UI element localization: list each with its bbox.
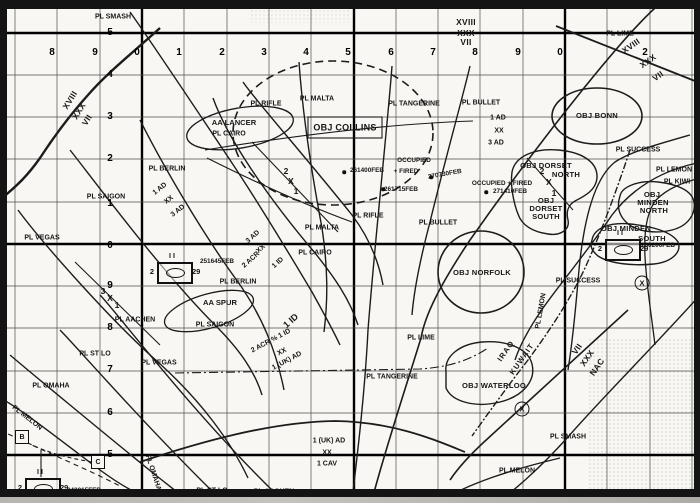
objective-label: OBJ NORFOLK (453, 269, 511, 277)
annotation-label: OCCUPIED (397, 158, 431, 164)
phase-line-label: PL CAIRO (212, 131, 245, 138)
phase-line-label: PL MELON (11, 404, 44, 432)
command-post-marker: B (15, 430, 29, 444)
echelon-label: II (37, 469, 45, 476)
unit-label: XX (322, 450, 331, 457)
phase-line-label: PL LEMON (534, 293, 547, 330)
phase-line-label: PL TANGERINE (366, 374, 417, 381)
armor-oval-icon (166, 268, 185, 278)
objective-label: OBJ WATERLOO (462, 382, 526, 390)
phase-line-label: PL MELON (499, 468, 535, 475)
grid-label: 2 (642, 48, 648, 58)
objective-label: NORTH (640, 207, 668, 215)
event-dot (429, 175, 433, 179)
unit-label: 1 AD (490, 115, 506, 122)
phase-line-label: PL CAIRO (298, 250, 331, 257)
map-label-overlay: PL SMASHPL LIMEPL RIFLEPL MALTAPL TANGER… (0, 0, 700, 503)
annotation-label: 251645FEB (200, 259, 234, 265)
map-border-bottom (0, 489, 700, 497)
armor-oval-icon (614, 245, 633, 255)
grid-label: 7 (430, 48, 436, 58)
grid-label: 2 (107, 154, 113, 164)
phase-line-label: PL TANGERINE (388, 101, 439, 108)
grid-label: 0 (107, 241, 113, 251)
corps-boundary-label: VII (570, 342, 583, 356)
boundary-mark: 1 (552, 189, 557, 198)
phase-line-label: PL ST LO (79, 351, 110, 358)
unit-label: 1 ID (271, 256, 285, 270)
phase-line-label: PL LIME (407, 335, 434, 342)
phase-line-label: PL KIWI (664, 179, 690, 186)
unit-label: 3 AD (488, 140, 504, 147)
phase-line-label: PL MALTA (300, 96, 334, 103)
unit-label: 1 CAV (317, 461, 337, 468)
grid-label: 8 (107, 323, 113, 333)
unit-label: 1 ID (282, 312, 300, 330)
grid-label: 1 (107, 199, 113, 209)
boundary-mark: 2 (284, 167, 289, 176)
unit-number-right: 29 (192, 267, 200, 276)
annotation-label: 261400FEB (350, 168, 384, 174)
grid-label: 6 (388, 48, 394, 58)
unit-label: 1 (UK) AD (313, 438, 345, 445)
checkpoint-icon: X (515, 402, 530, 417)
annotation-label: + FIRED (394, 169, 419, 175)
unit-label: XX (494, 128, 503, 135)
annotation-label: 261715FEB (384, 187, 418, 193)
grid-label: 5 (345, 48, 351, 58)
checkpoint-icon: X (635, 276, 650, 291)
boundary-mark: 2 (540, 167, 545, 176)
unit-label: 3 AD (170, 203, 187, 218)
grid-label: 3 (261, 48, 267, 58)
phase-line-label: PL RIFLE (251, 101, 282, 108)
boundary-mark: X (288, 177, 294, 186)
grid-label: 0 (134, 48, 140, 58)
objective-label: OBJ MINDEN (601, 225, 651, 233)
map-border-right (694, 0, 700, 503)
phase-line-label: PL SUCCESS (556, 278, 601, 285)
unit-label: XX (163, 194, 175, 205)
objective-label: NORTH (552, 171, 580, 179)
annotation-label: 270730FEB (428, 169, 463, 181)
grid-label: 1 (176, 48, 182, 58)
phase-line-label: PL MALTA (305, 225, 339, 232)
corps-boundary-label: VII (651, 69, 665, 82)
boundary-mark: 1 (294, 187, 299, 196)
phase-line-label: PL BERLIN (149, 166, 186, 173)
grid-label: 2 (219, 48, 225, 58)
grid-label: 4 (107, 70, 113, 80)
grid-label: 5 (107, 28, 113, 38)
annotation-label: 271410FEB (493, 189, 527, 195)
objective-label: OBJ DORSET (520, 162, 572, 170)
unit-number-left: 2 (150, 267, 154, 276)
phase-line-label: PL OMAHA (144, 454, 162, 492)
corps-boundary-label: XVIII (456, 18, 476, 26)
grid-label: 9 (92, 48, 98, 58)
phase-line-label: PL AACHEN (115, 317, 155, 324)
grid-label: 0 (557, 48, 563, 58)
grid-label: 8 (49, 48, 55, 58)
grid-label: 4 (303, 48, 309, 58)
phase-line-label: PL VEGAS (24, 235, 59, 242)
phase-line-label: PL LIME (606, 31, 633, 38)
corps-boundary-label: XVIII (621, 37, 642, 55)
unit-frame (605, 239, 641, 261)
phase-line-label: PL BERLIN (220, 279, 257, 286)
operations-map: PL SMASHPL LIMEPL RIFLEPL MALTAPL TANGER… (0, 0, 700, 503)
boundary-mark: 3 (101, 287, 106, 296)
phase-line-label: PL BULLET (462, 100, 500, 107)
grid-label: 6 (107, 408, 113, 418)
scan-edge-strip (0, 497, 700, 503)
unit-frame (157, 262, 193, 284)
assembly-area-label: AA SPUR (203, 299, 237, 307)
map-border-top (0, 0, 700, 9)
phase-line-label: PL OMAHA (32, 383, 69, 390)
boundary-mark: X (546, 178, 552, 187)
boundary-mark: 1 (115, 301, 120, 310)
phase-line-label: PL SMASH (95, 14, 131, 21)
intl-border-label: IRAQ (496, 339, 516, 363)
boundary-mark: X (107, 294, 113, 303)
unit-label: 1 AD (152, 181, 169, 196)
objective-label: OBJ COLLINS (313, 124, 376, 133)
grid-label: 9 (515, 48, 521, 58)
phase-line-label: PL RIFLE (353, 213, 384, 220)
objective-label: OBJ BONN (576, 112, 618, 120)
objective-label: SOUTH (532, 213, 560, 221)
event-dot (381, 187, 385, 191)
corps-boundary-label: VII (80, 113, 93, 127)
event-dot (342, 170, 346, 174)
phase-line-label: PL LEMON (656, 167, 692, 174)
grid-label: 9 (107, 281, 113, 291)
unit-label: 3 AD (245, 229, 261, 245)
unit-number-left: 2 (598, 244, 602, 253)
unit-label: 1 (UK) AD (271, 350, 303, 371)
grid-label: 7 (107, 365, 113, 375)
phase-line-label: PL SMASH (550, 434, 586, 441)
grid-label: 5 (107, 450, 113, 460)
unit-label: 2 ACR (241, 250, 261, 269)
phase-line-label: PL SAIGON (196, 322, 234, 329)
phase-line-label: PL SUCCESS (616, 147, 661, 154)
corps-boundary-label: VII (460, 38, 471, 46)
echelon-label: II (617, 230, 625, 237)
unit-number-right: 29 (640, 244, 648, 253)
assembly-area-label: AA LANCER (212, 119, 256, 127)
unit-label: XX (276, 347, 288, 358)
annotation-label: OCCUPIED + FIRED (472, 181, 532, 187)
command-post-marker: C (91, 455, 105, 469)
map-border-left (0, 0, 7, 503)
phase-line-label: PL SAIGON (87, 194, 125, 201)
phase-line-label: PL BULLET (419, 220, 457, 227)
grid-label: 8 (472, 48, 478, 58)
grid-label: 3 (107, 112, 113, 122)
event-dot (484, 190, 488, 194)
echelon-label: II (169, 253, 177, 260)
phase-line-label: PL VEGAS (141, 360, 176, 367)
